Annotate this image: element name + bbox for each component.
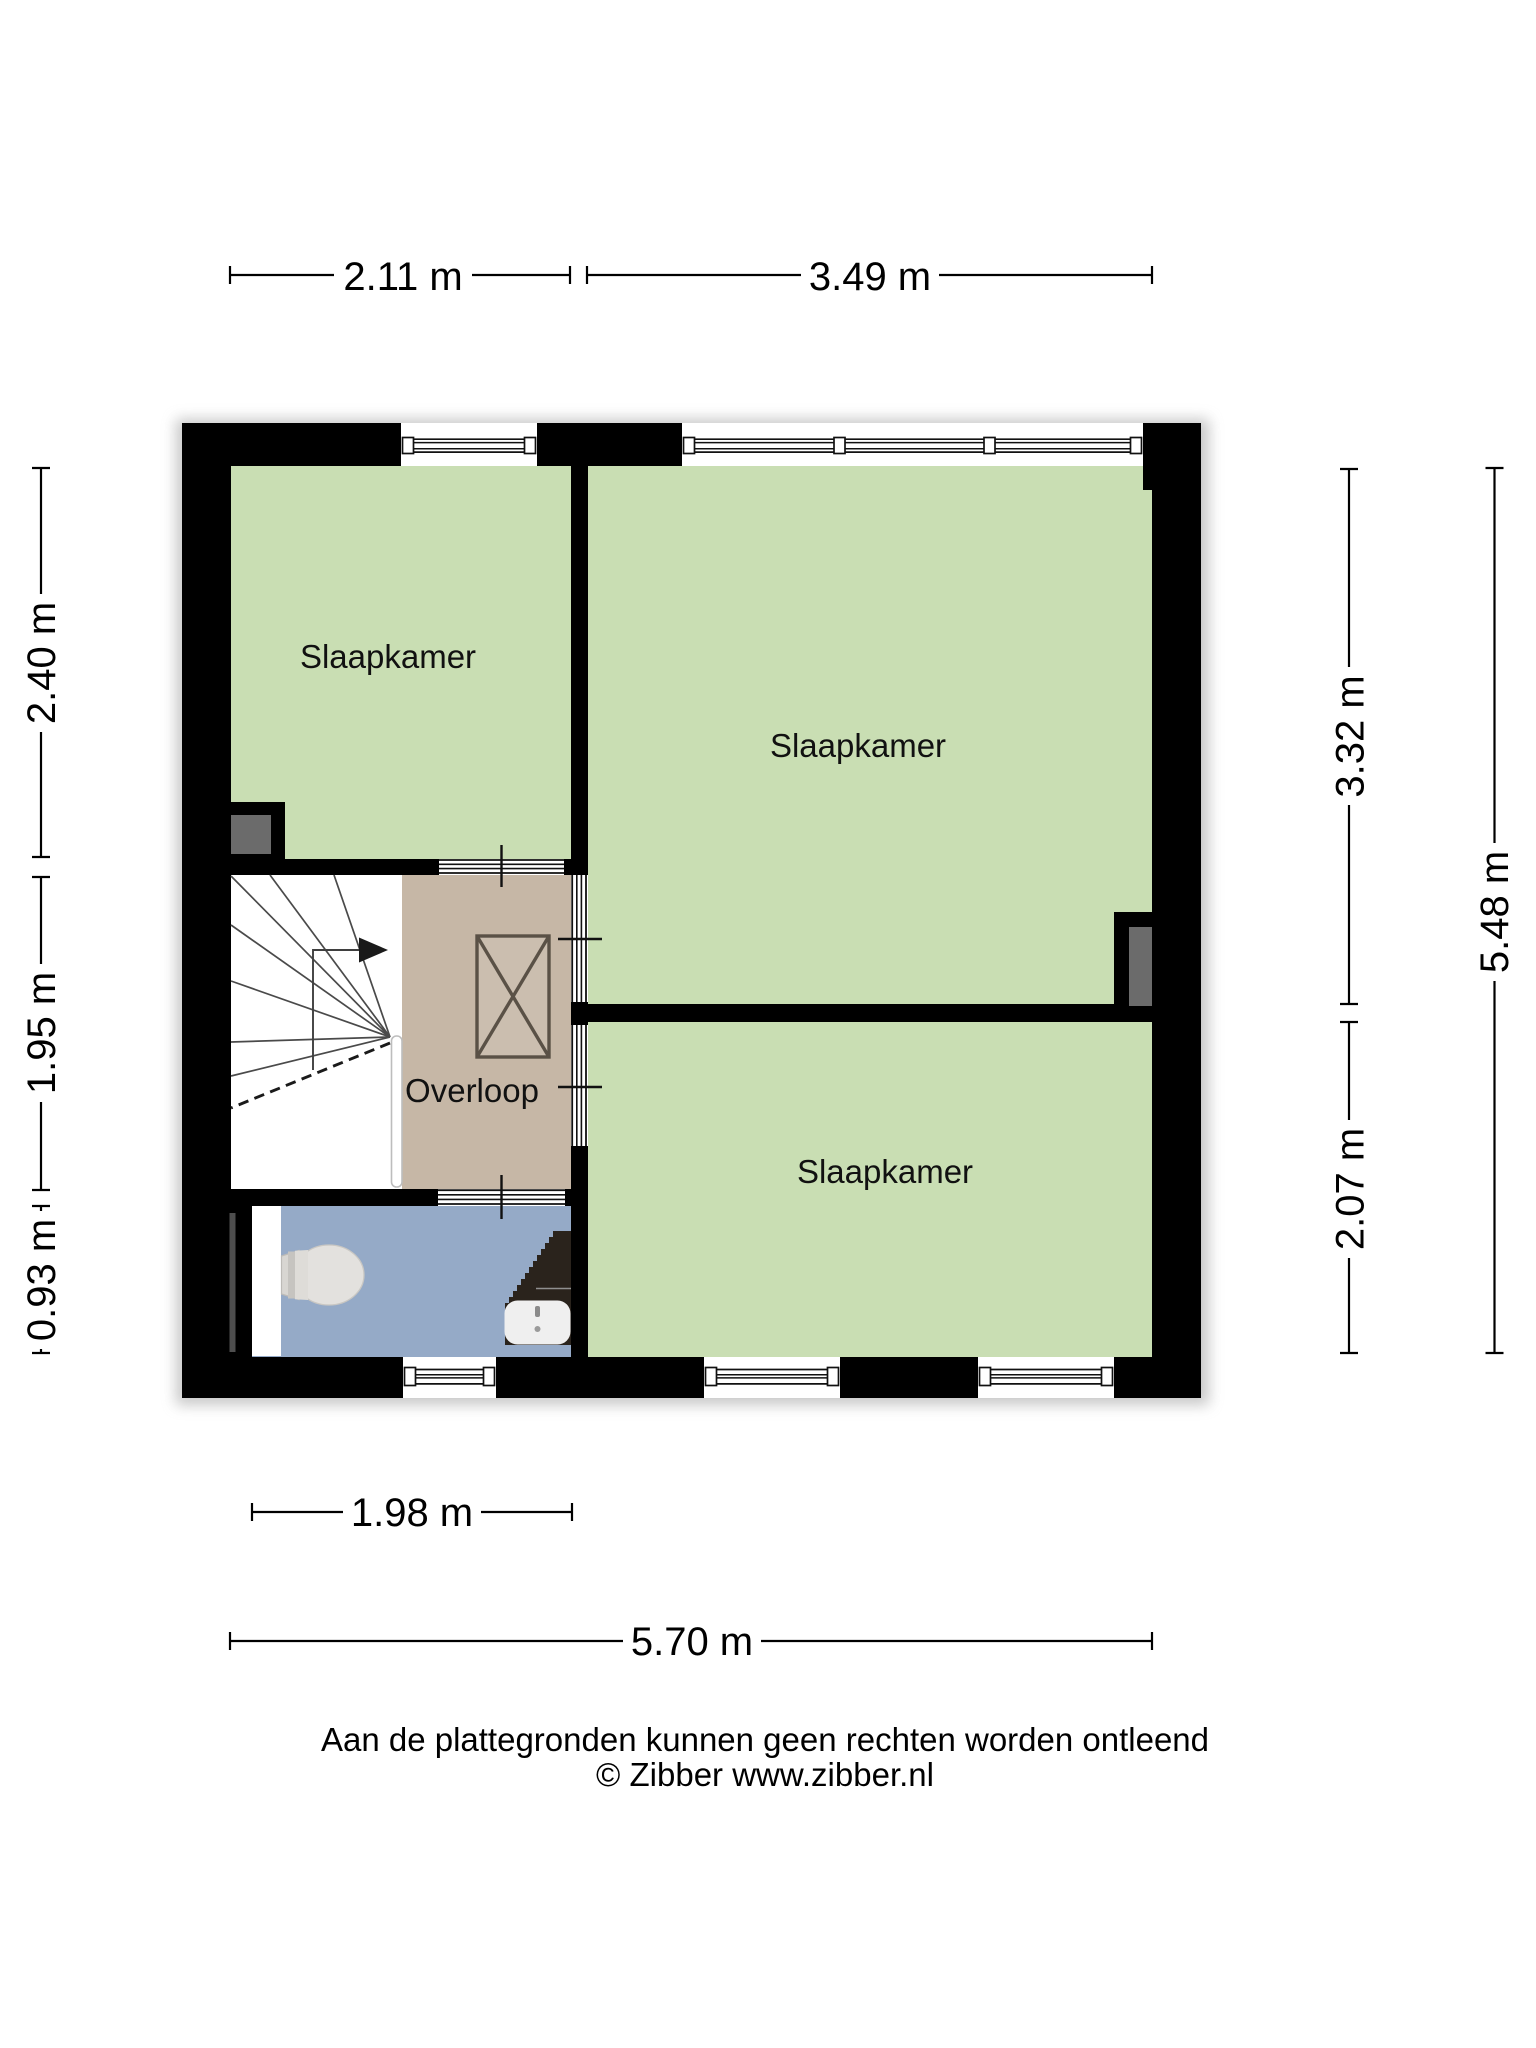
svg-text:1.95 m: 1.95 m: [20, 972, 64, 1094]
svg-text:2.40 m: 2.40 m: [20, 602, 64, 724]
svg-text:2.07 m: 2.07 m: [1329, 1128, 1373, 1250]
svg-text:Slaapkamer: Slaapkamer: [770, 727, 946, 764]
svg-text:Slaapkamer: Slaapkamer: [300, 638, 476, 675]
svg-text:0.93 m: 0.93 m: [20, 1219, 64, 1341]
svg-text:2.11 m: 2.11 m: [343, 255, 462, 299]
svg-text:5.70 m: 5.70 m: [631, 1620, 753, 1664]
svg-text:3.49 m: 3.49 m: [809, 255, 931, 299]
svg-text:3.32 m: 3.32 m: [1329, 675, 1373, 797]
svg-text:Aan de plattegronden kunnen ge: Aan de plattegronden kunnen geen rechten…: [321, 1721, 1209, 1758]
svg-text:5.48 m: 5.48 m: [1473, 851, 1517, 973]
svg-text:© Zibber www.zibber.nl: © Zibber www.zibber.nl: [596, 1756, 934, 1793]
svg-text:Overloop: Overloop: [405, 1072, 539, 1109]
svg-text:1.98 m: 1.98 m: [351, 1491, 473, 1535]
svg-text:Slaapkamer: Slaapkamer: [797, 1153, 973, 1190]
